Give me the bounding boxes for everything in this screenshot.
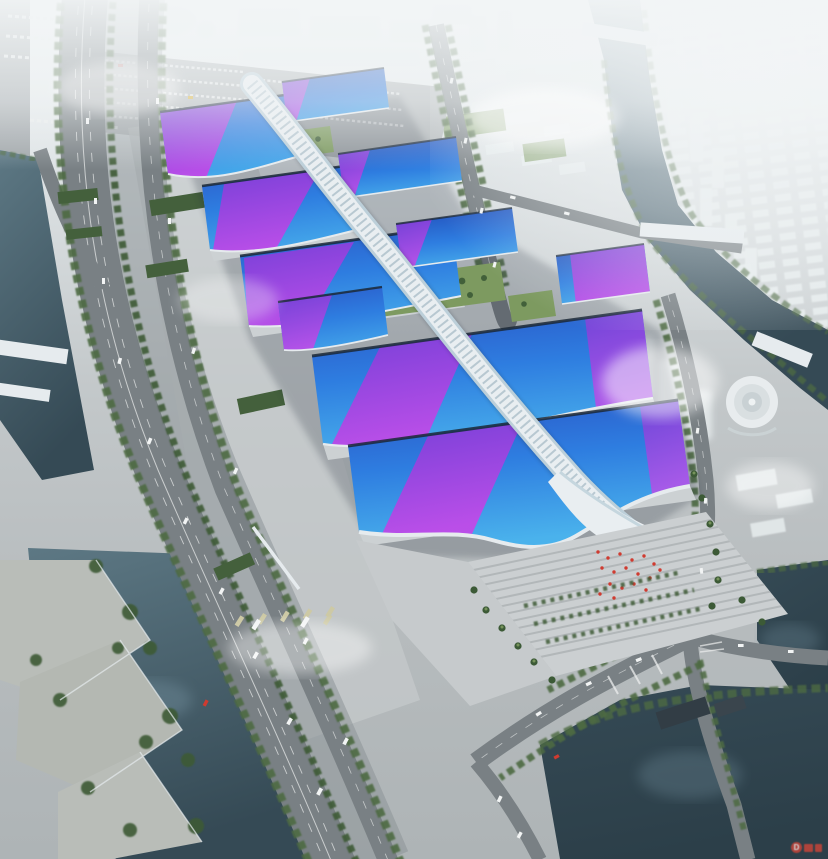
- city-skyline-top: [148, 4, 512, 66]
- aerial-rendering: D: [0, 0, 828, 859]
- watermark: D: [791, 842, 822, 853]
- round-building: [726, 376, 778, 435]
- rendering-canvas: [0, 0, 828, 859]
- watermark-glyph-block: [804, 844, 813, 852]
- watermark-glyph-block: [815, 844, 822, 852]
- city-blocks-se: [735, 463, 817, 539]
- watermark-logo-icon: D: [791, 842, 802, 853]
